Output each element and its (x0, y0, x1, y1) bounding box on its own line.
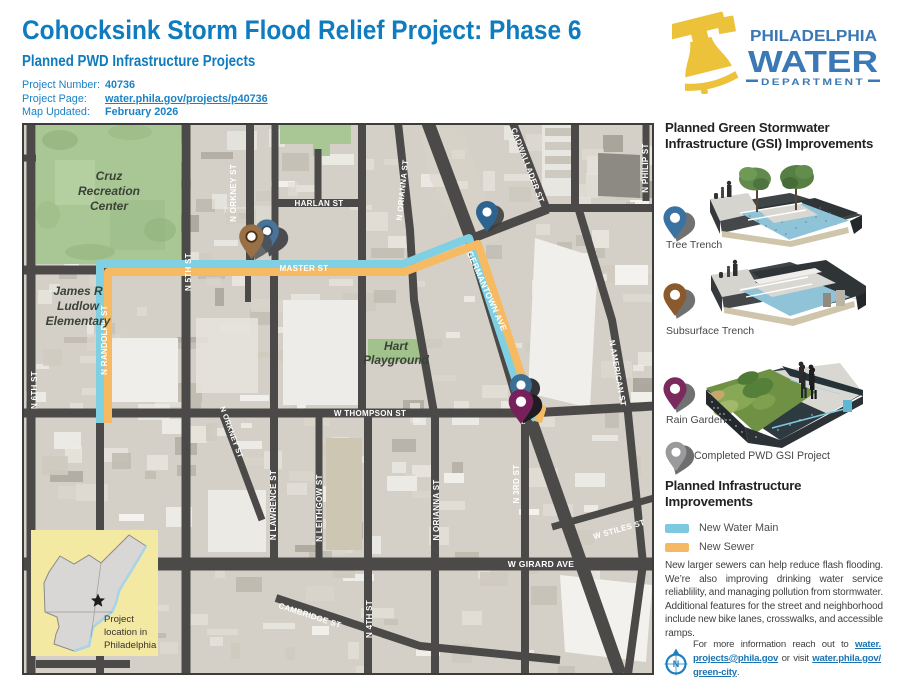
svg-text:W GIRARD AVE: W GIRARD AVE (508, 559, 574, 569)
svg-text:James R: James R (53, 284, 103, 298)
svg-text:N LAWRENCE ST: N LAWRENCE ST (269, 470, 278, 540)
svg-text:N PHILIP ST: N PHILIP ST (641, 143, 650, 192)
svg-text:N ORKNEY ST: N ORKNEY ST (229, 164, 238, 222)
svg-text:Hart: Hart (384, 339, 409, 353)
svg-text:Recreation: Recreation (78, 184, 140, 198)
svg-text:Playground: Playground (363, 353, 430, 367)
svg-text:N ORIANNA ST: N ORIANNA ST (432, 479, 441, 540)
svg-text:N 3RD ST: N 3RD ST (512, 465, 521, 504)
svg-text:Ludlow: Ludlow (57, 299, 100, 313)
svg-text:WATER: WATER (748, 44, 878, 79)
svg-text:PHILADELPHIA: PHILADELPHIA (750, 28, 877, 45)
svg-text:DEPARTMENT: DEPARTMENT (761, 77, 865, 88)
svg-text:Center: Center (90, 199, 129, 213)
svg-text:location in: location in (104, 627, 147, 638)
svg-text:Cruz: Cruz (96, 169, 123, 183)
svg-text:MASTER ST: MASTER ST (280, 264, 329, 273)
svg-text:Elementary: Elementary (46, 314, 112, 328)
svg-text:N LEITHGOW ST: N LEITHGOW ST (315, 474, 324, 541)
svg-text:N 6TH ST: N 6TH ST (30, 371, 39, 409)
svg-text:Project: Project (104, 614, 134, 625)
svg-text:N 4TH ST: N 4TH ST (365, 600, 374, 638)
svg-text:N 5TH ST: N 5TH ST (184, 253, 193, 291)
svg-text:HARLAN ST: HARLAN ST (295, 199, 344, 208)
svg-text:Philadelphia: Philadelphia (104, 640, 157, 651)
svg-text:N: N (673, 659, 680, 669)
svg-text:W THOMPSON ST: W THOMPSON ST (334, 409, 406, 418)
